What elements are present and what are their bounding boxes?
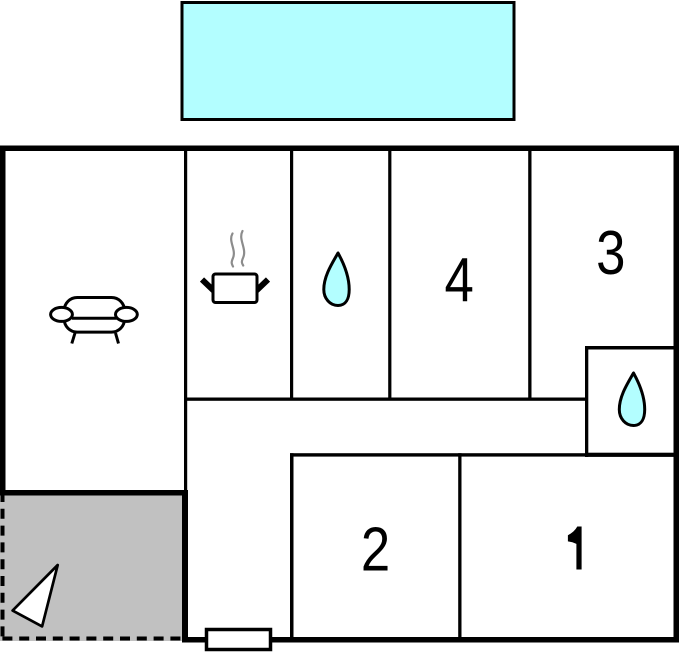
svg-text:4: 4 xyxy=(444,246,473,315)
svg-text:2: 2 xyxy=(361,515,390,584)
svg-text:3: 3 xyxy=(596,219,625,288)
